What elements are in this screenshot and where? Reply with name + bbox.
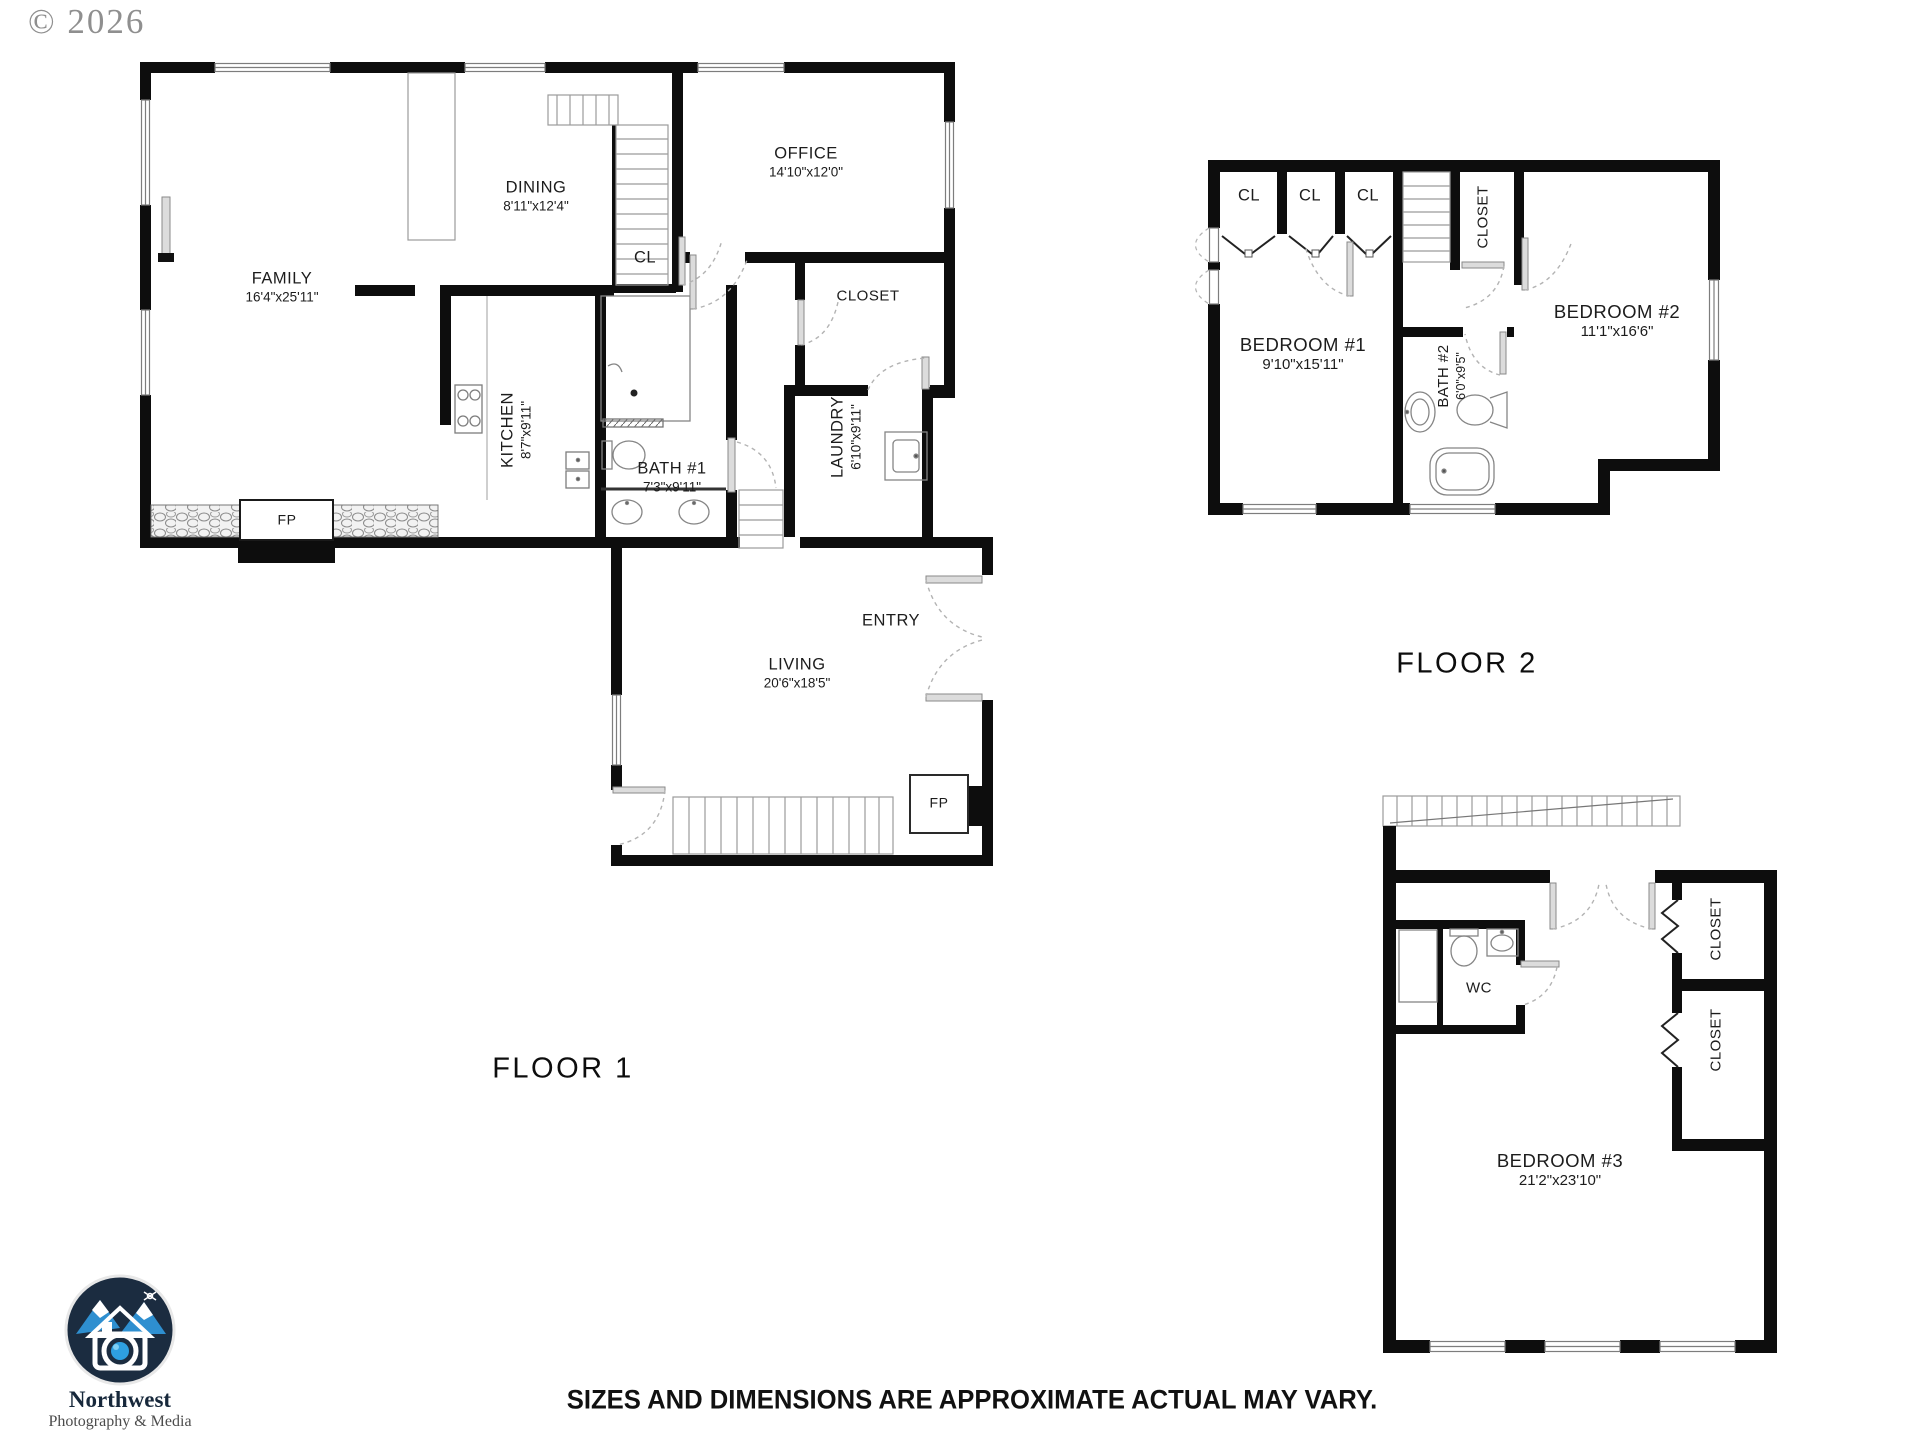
room-label-cl2: CL [1299, 186, 1321, 207]
room-label-bedroom2: BEDROOM #2 11'1"x16'6" [1554, 300, 1680, 342]
wc-door-arc [1523, 967, 1557, 1005]
shower-icon [601, 296, 690, 421]
wc-fixtures [1399, 929, 1518, 1002]
floor3-stairs [1383, 796, 1680, 826]
room-label-office: OFFICE 14'10"x12'0" [769, 143, 843, 181]
room-label-bedroom1: BEDROOM #1 9'10"x15'11" [1240, 333, 1366, 375]
room-label-closet-upper: CLOSET [1708, 897, 1727, 960]
room-label-living: LIVING 20'6"x18'5" [764, 654, 831, 692]
floorplan-drawing [0, 0, 1920, 1440]
room-label-dining: DINING 8'11"x12'4" [503, 177, 569, 215]
room-label-closet-f1: CLOSET [836, 288, 899, 307]
floor3-plan [1383, 796, 1777, 1353]
floorplan-page: © 2026 FAMILY 16'4"x25'11" DINING 8'11"x… [0, 0, 1920, 1440]
tub-icon [1430, 448, 1494, 495]
room-label-cl: CL [634, 248, 656, 269]
room-label-kitchen: KITCHEN 8'7"x9'11" [497, 392, 535, 468]
floor2-casement-arcs [1196, 228, 1210, 304]
laundry-sink-icon [885, 432, 927, 480]
room-label-laundry: LAUNDRY 6'10"x9'11" [827, 396, 865, 478]
floor1-stairs-hall [739, 490, 783, 548]
room-label-bedroom3: BEDROOM #3 21'2"x23'10" [1497, 1149, 1623, 1191]
room-label-bath1: BATH #1 7'3"x9'11" [637, 458, 706, 496]
room-label-cl3: CL [1357, 186, 1379, 207]
room-label-closet-f2: CLOSET [1475, 185, 1494, 248]
fireplace-label-living: FP [930, 794, 949, 812]
room-label-bath2: BATH #2 6'0"x9'5" [1435, 344, 1469, 407]
room-label-cl1: CL [1238, 186, 1260, 207]
sink-icon [1487, 929, 1518, 956]
copyright-watermark: © 2026 [28, 2, 145, 42]
floor2-title: FLOOR 2 [1396, 648, 1538, 681]
floor1-title: FLOOR 1 [492, 1053, 634, 1086]
wc-door-leaf [1521, 961, 1559, 967]
shower-stall [1399, 930, 1437, 1002]
logo-tagline: Photography & Media [45, 1412, 195, 1431]
room-label-wc: WC [1466, 980, 1492, 999]
sink-icon [1405, 392, 1435, 432]
disclaimer-text: SIZES AND DIMENSIONS ARE APPROXIMATE ACT… [567, 1385, 1377, 1416]
floor1-stairs-living [673, 797, 893, 854]
fireplace-label-family: FP [278, 511, 297, 529]
room-label-closet-lower: CLOSET [1708, 1008, 1727, 1071]
floor3-windows [1430, 1342, 1735, 1352]
floor2-stairs [1403, 172, 1450, 262]
floor2-bifold-doors [1222, 236, 1391, 257]
floor3-french-doors [1550, 883, 1655, 929]
room-label-entry: ENTRY [862, 611, 920, 632]
company-logo: Northwest Photography & Media [45, 1272, 195, 1431]
logo-name: Northwest [45, 1388, 195, 1412]
toilet-icon [1450, 929, 1478, 966]
room-label-family: FAMILY 16'4"x25'11" [245, 268, 318, 306]
logo-graphic [62, 1272, 178, 1388]
dining-column [408, 73, 455, 240]
